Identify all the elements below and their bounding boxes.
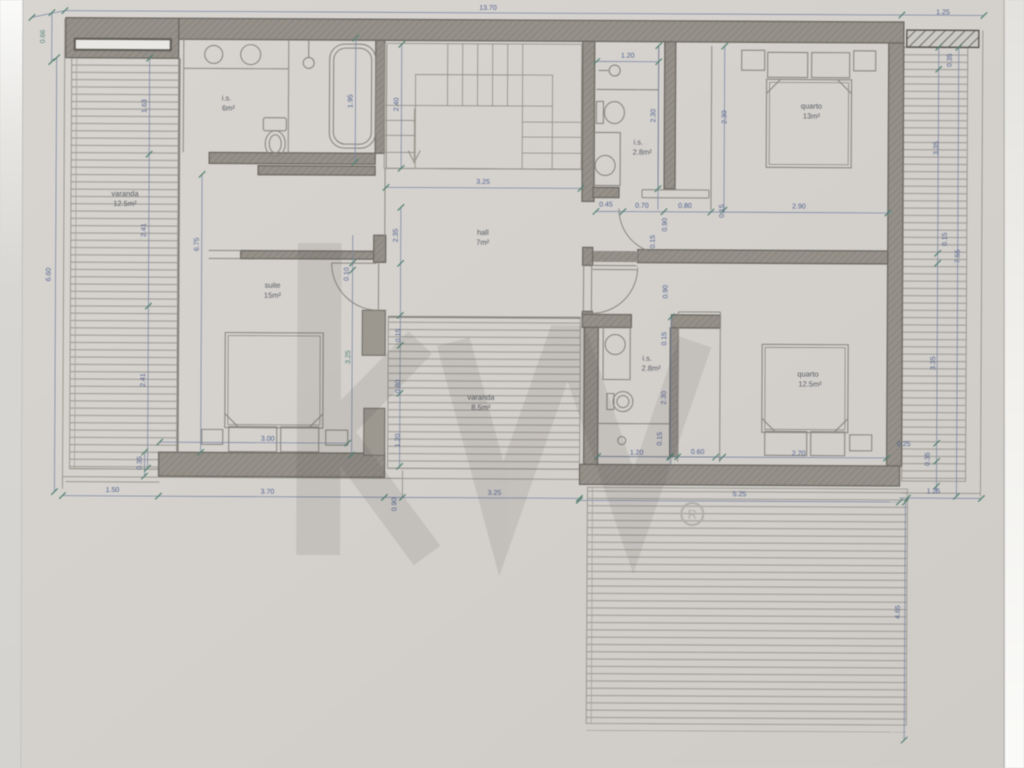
svg-text:1.63: 1.63 (141, 99, 148, 113)
svg-text:2.41: 2.41 (141, 223, 148, 237)
svg-text:0.25: 0.25 (897, 441, 911, 448)
svg-text:3.35: 3.35 (930, 356, 937, 370)
svg-text:varanda: varanda (111, 189, 139, 198)
svg-text:0.15: 0.15 (719, 204, 726, 218)
svg-text:0.90: 0.90 (662, 285, 669, 299)
svg-text:6.60: 6.60 (46, 268, 53, 282)
svg-text:1.25: 1.25 (927, 488, 941, 495)
svg-text:0.35: 0.35 (925, 452, 932, 466)
svg-text:2.41: 2.41 (140, 373, 147, 387)
svg-text:3.70: 3.70 (261, 489, 275, 496)
svg-text:i.s.: i.s. (642, 354, 652, 363)
svg-text:1.95: 1.95 (347, 94, 354, 108)
svg-text:0.15: 0.15 (650, 235, 657, 249)
svg-text:0.45: 0.45 (599, 201, 613, 208)
svg-text:0.15: 0.15 (661, 332, 668, 346)
svg-text:i.s.: i.s. (222, 93, 232, 102)
svg-text:12.5m²: 12.5m² (798, 379, 822, 388)
svg-text:2.40: 2.40 (393, 97, 400, 111)
svg-text:13.70: 13.70 (479, 5, 497, 12)
svg-text:2.35: 2.35 (393, 228, 400, 242)
svg-text:1.50: 1.50 (106, 487, 120, 494)
svg-text:i.s.: i.s. (633, 138, 643, 147)
svg-text:0.35: 0.35 (137, 456, 144, 470)
svg-text:0.70: 0.70 (635, 203, 649, 210)
svg-text:quarto: quarto (801, 102, 822, 111)
svg-text:6m²: 6m² (222, 103, 235, 112)
svg-text:suite: suite (265, 281, 281, 290)
svg-text:12.5m²: 12.5m² (113, 199, 137, 208)
svg-text:1.20: 1.20 (395, 433, 402, 447)
svg-text:hall: hall (477, 228, 489, 237)
svg-text:2.30: 2.30 (650, 109, 657, 123)
svg-text:6.75: 6.75 (194, 237, 201, 251)
svg-text:quarto: quarto (797, 369, 818, 378)
svg-text:R: R (688, 507, 697, 522)
svg-text:0.35: 0.35 (947, 53, 954, 67)
svg-text:15m²: 15m² (264, 291, 282, 300)
svg-text:3.25: 3.25 (476, 179, 490, 186)
svg-text:0.66: 0.66 (40, 30, 47, 44)
svg-text:2.70: 2.70 (792, 450, 806, 457)
svg-text:3.00: 3.00 (261, 436, 275, 443)
svg-text:2.30: 2.30 (721, 110, 728, 124)
svg-text:2.8m²: 2.8m² (641, 364, 661, 373)
svg-text:13m²: 13m² (803, 112, 821, 121)
svg-text:2.90: 2.90 (792, 203, 806, 210)
svg-text:3.35: 3.35 (933, 141, 940, 155)
svg-text:0.60: 0.60 (691, 449, 705, 456)
svg-text:0.10: 0.10 (344, 267, 351, 281)
svg-text:0.90: 0.90 (662, 218, 669, 232)
svg-text:1.20: 1.20 (621, 53, 635, 60)
svg-text:0.80: 0.80 (678, 203, 692, 210)
svg-text:4.65: 4.65 (895, 605, 902, 619)
svg-text:7.55: 7.55 (955, 249, 962, 263)
svg-text:7m²: 7m² (476, 238, 489, 247)
svg-text:5.25: 5.25 (733, 491, 747, 498)
svg-text:3.25: 3.25 (345, 350, 352, 364)
svg-text:1.25: 1.25 (936, 9, 950, 16)
svg-text:2.8m²: 2.8m² (633, 148, 653, 157)
svg-text:0.15: 0.15 (942, 232, 949, 246)
